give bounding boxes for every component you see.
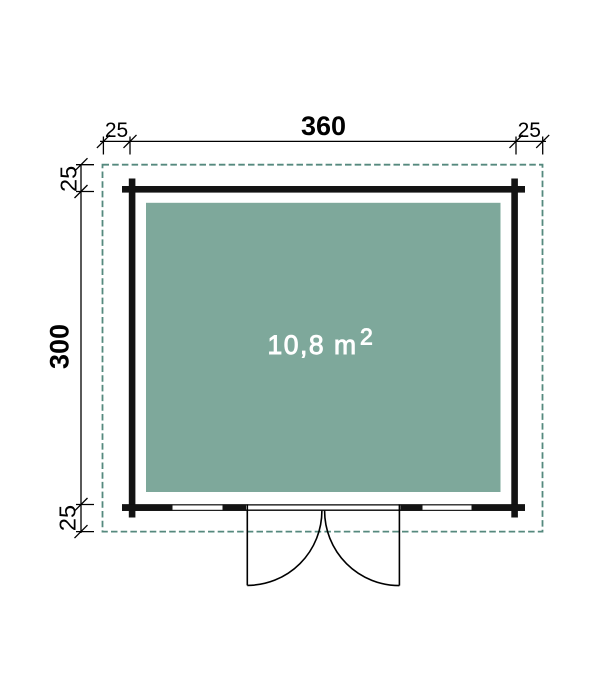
svg-text:25: 25: [55, 505, 81, 531]
svg-text:2: 2: [360, 324, 373, 350]
svg-text:360: 360: [301, 111, 346, 141]
svg-text:10,8 m: 10,8 m: [268, 330, 358, 360]
svg-text:25: 25: [105, 119, 128, 142]
svg-text:25: 25: [518, 119, 541, 142]
svg-text:25: 25: [55, 166, 81, 192]
svg-text:300: 300: [44, 324, 74, 369]
